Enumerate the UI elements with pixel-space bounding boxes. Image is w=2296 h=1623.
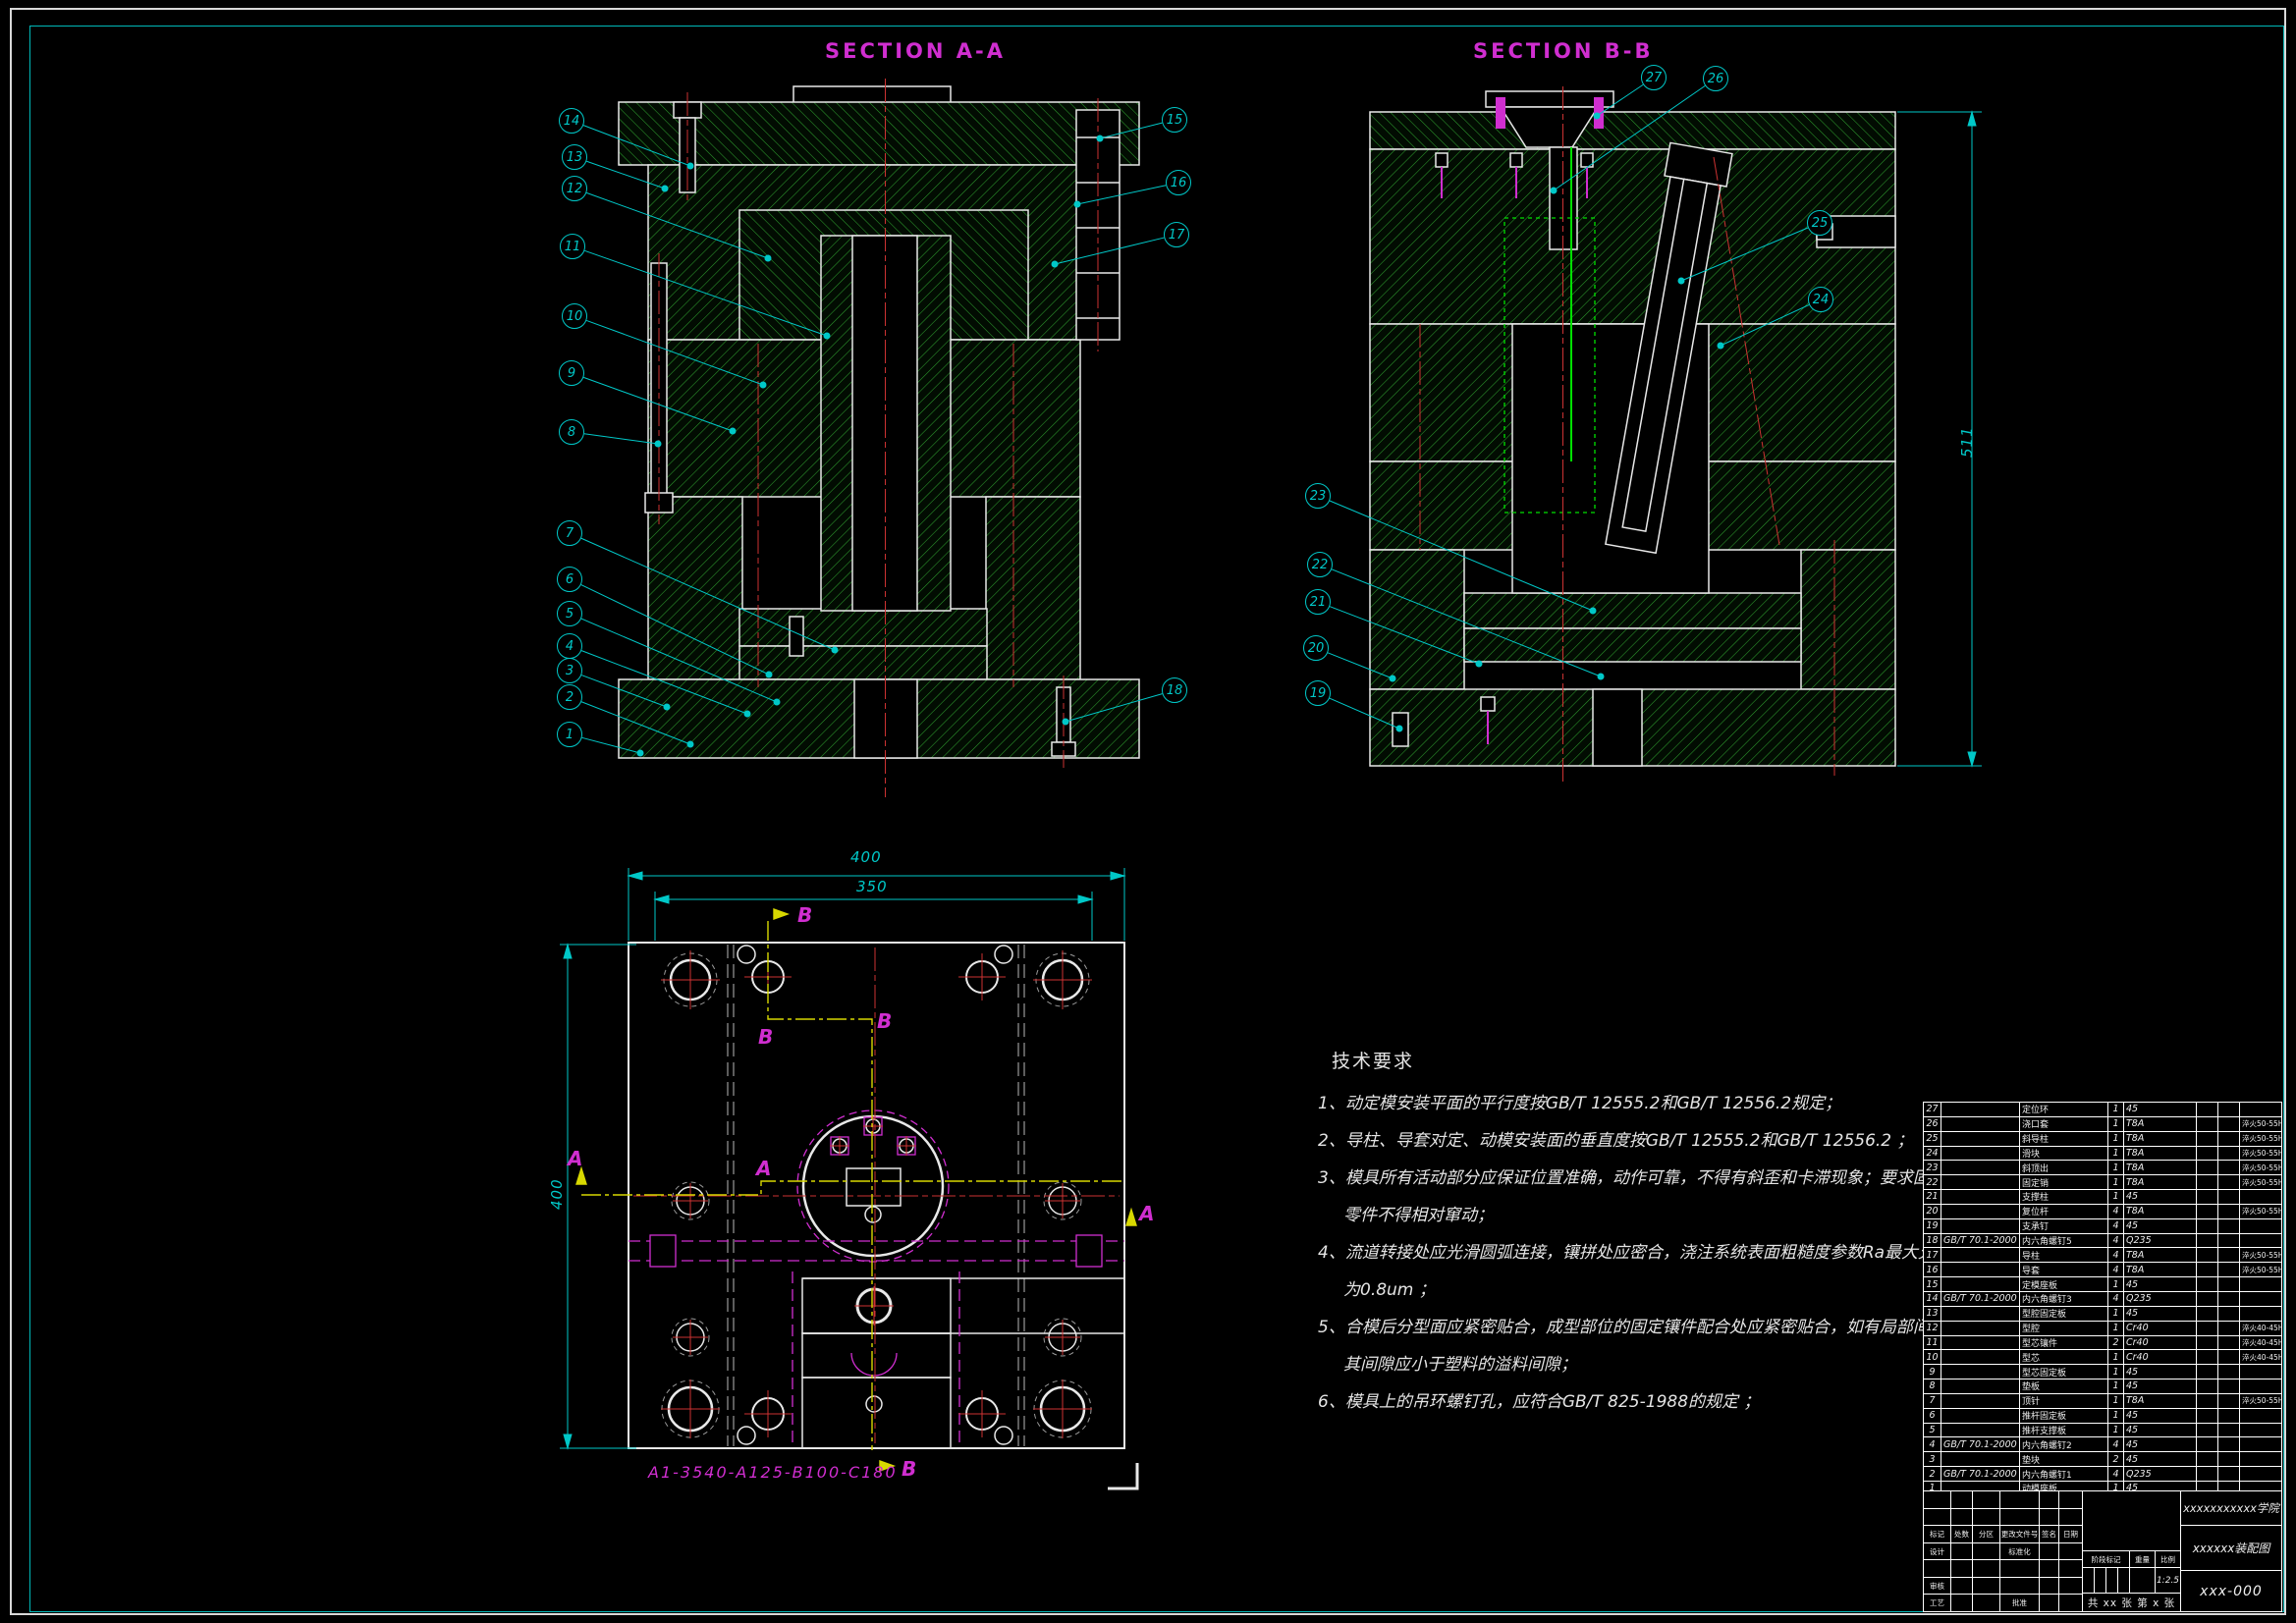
- balloon-9: 9: [559, 360, 584, 386]
- section-letter-A: A: [568, 1147, 582, 1170]
- tech-requirement-line: 其间隙应小于塑料的溢料间隙；: [1318, 1346, 1868, 1383]
- label-approve: 批准: [2000, 1595, 2040, 1611]
- balloon-22: 22: [1307, 552, 1333, 577]
- weight-value: [2130, 1568, 2156, 1593]
- balloon-20: 20: [1303, 635, 1329, 661]
- cad-drawing-canvas[interactable]: SECTION A-A SECTION B-B 400 350 400 511 …: [0, 0, 2296, 1623]
- balloon-6: 6: [557, 567, 582, 592]
- parts-list-row-18: 18GB/T 70.1-2000内六角螺钉54Q235: [1924, 1234, 2281, 1249]
- balloon-8: 8: [559, 419, 584, 445]
- parts-list-row-11: 11型芯镶件2Cr40淬火40-45HRC: [1924, 1336, 2281, 1351]
- balloon-3: 3: [557, 658, 582, 683]
- tech-requirement-line: 1、动定模安装平面的平行度按GB/T 12555.2和GB/T 12556.2规…: [1318, 1085, 1868, 1122]
- balloon-1: 1: [557, 722, 582, 747]
- parts-list-row-4: 4GB/T 70.1-2000内六角螺钉2445: [1924, 1437, 2281, 1452]
- tech-requirement-line: 2、导柱、导套对定、动模安装面的垂直度按GB/T 12555.2和GB/T 12…: [1318, 1122, 1868, 1160]
- title-block-middle: 阶段标记 重量 比例 1:2.5 共 xx 张 第 x 张: [2083, 1491, 2181, 1611]
- balloon-19: 19: [1305, 680, 1331, 706]
- label-zone: 分区: [1973, 1526, 2000, 1542]
- dim-inner-350: 350: [856, 878, 888, 895]
- section-letter-B: B: [902, 1457, 916, 1481]
- title-block-right: xxxxxxxxxxx学院 xxxxxx装配图 xxx-000: [2181, 1491, 2281, 1611]
- parts-list-row-24: 24滑块1T8A淬火50-55HRC: [1924, 1147, 2281, 1162]
- label-stage-mark: 阶段标记: [2083, 1551, 2130, 1567]
- parts-list-row-7: 7顶针1T8A淬火50-55HRC: [1924, 1394, 2281, 1409]
- section-letter-B: B: [797, 903, 812, 927]
- balloon-4: 4: [557, 633, 582, 659]
- organization-name: xxxxxxxxxxx学院: [2181, 1491, 2281, 1526]
- stage-mark-cells: [2083, 1568, 2130, 1593]
- parts-list-row-12: 12型腔1Cr40淬火40-45HRC: [1924, 1322, 2281, 1336]
- balloon-13: 13: [562, 144, 587, 170]
- parts-list-row-23: 23斜顶出1T8A淬火50-55HRC: [1924, 1161, 2281, 1175]
- tech-requirement-line: 3、模具所有活动部分应保证位置准确，动作可靠，不得有斜歪和卡滞现象；要求固定的: [1318, 1160, 1868, 1197]
- balloon-23: 23: [1305, 483, 1331, 509]
- parts-list-row-16: 16导套4T8A淬火50-55HRC: [1924, 1263, 2281, 1277]
- parts-list-row-6: 6推杆固定板145: [1924, 1409, 2281, 1424]
- parts-list-row-20: 20复位杆4T8A淬火50-55HRC: [1924, 1205, 2281, 1219]
- balloon-18: 18: [1162, 677, 1187, 703]
- drawing-title: xxxxxx装配图: [2181, 1526, 2281, 1571]
- label-sign: 签名: [2040, 1526, 2059, 1542]
- balloon-16: 16: [1166, 170, 1191, 195]
- drawing-number: xxx-000: [2181, 1571, 2281, 1611]
- sheet-count: 共 xx 张 第 x 张: [2083, 1594, 2180, 1611]
- dim-height-511: 511: [1958, 426, 1976, 458]
- tech-requirement-line: 6、模具上的吊环螺钉孔，应符合GB/T 825-1988的规定 ；: [1318, 1383, 1868, 1421]
- label-review: 审核: [1924, 1578, 1951, 1595]
- balloon-15: 15: [1162, 107, 1187, 133]
- parts-list-row-8: 8垫板145: [1924, 1380, 2281, 1394]
- balloon-10: 10: [562, 303, 587, 329]
- balloon-11: 11: [560, 234, 585, 259]
- tech-requirement-line: 4、流道转接处应光滑圆弧连接，镶拼处应密合，浇注系统表面粗糙度参数Ra最大允许值: [1318, 1234, 1868, 1271]
- label-mark: 标记: [1924, 1526, 1951, 1542]
- balloon-2: 2: [557, 684, 582, 710]
- parts-list-row-2: 2GB/T 70.1-2000内六角螺钉14Q235: [1924, 1467, 2281, 1482]
- balloon-5: 5: [557, 601, 582, 626]
- parts-list-row-22: 22固定销1T8A淬火50-55HRC: [1924, 1175, 2281, 1190]
- parts-list-table: 27定位环14526浇口套1T8A淬火50-55HRC25斜导柱1T8A淬火50…: [1923, 1102, 2282, 1519]
- parts-list-row-21: 21支撑柱145: [1924, 1190, 2281, 1205]
- parts-list-row-3: 3垫块245: [1924, 1452, 2281, 1467]
- label-design: 设计: [1924, 1543, 1951, 1560]
- tech-requirements-lines: 1、动定模安装平面的平行度按GB/T 12555.2和GB/T 12556.2规…: [1318, 1085, 1868, 1421]
- title-block: 标记 处数 分区 更改文件号 签名 日期 设计 标准化 审核 工艺 批: [1923, 1490, 2282, 1612]
- section-letter-A: A: [1139, 1202, 1154, 1225]
- mold-base-code: A1-3540-A125-B100-C180: [648, 1463, 898, 1482]
- scale-value: 1:2.5: [2156, 1568, 2180, 1593]
- parts-list-row-27: 27定位环145: [1924, 1103, 2281, 1117]
- parts-list-row-17: 17导柱4T8A淬火50-55HRC: [1924, 1248, 2281, 1263]
- parts-list-row-25: 25斜导柱1T8A淬火50-55HRC: [1924, 1132, 2281, 1147]
- parts-list-row-26: 26浇口套1T8A淬火50-55HRC: [1924, 1117, 2281, 1132]
- tech-requirement-line: 为0.8um ；: [1318, 1271, 1868, 1309]
- parts-list-row-10: 10型芯1Cr40淬火40-45HRC: [1924, 1350, 2281, 1365]
- section-letter-A: A: [756, 1157, 771, 1180]
- balloon-27: 27: [1641, 65, 1667, 90]
- tech-requirement-line: 零件不得相对窜动；: [1318, 1197, 1868, 1234]
- tech-requirement-line: 5、合模后分型面应紧密贴合，成型部位的固定镶件配合处应紧密贴合，如有局部间隙，: [1318, 1309, 1868, 1346]
- section-b-title: SECTION B-B: [1473, 39, 1654, 63]
- dim-top-400: 400: [850, 848, 882, 866]
- balloon-14: 14: [559, 108, 584, 134]
- section-letter-B: B: [877, 1009, 892, 1033]
- parts-list-row-9: 9型芯固定板145: [1924, 1365, 2281, 1380]
- label-scale: 比例: [2156, 1551, 2180, 1567]
- section-a-title: SECTION A-A: [825, 39, 1006, 63]
- section-letter-B: B: [758, 1025, 773, 1049]
- parts-list-row-13: 13型腔固定板145: [1924, 1307, 2281, 1322]
- balloon-17: 17: [1164, 222, 1189, 247]
- label-process: 工艺: [1924, 1595, 1951, 1611]
- balloon-21: 21: [1305, 589, 1331, 615]
- parts-list-row-15: 15定模座板145: [1924, 1277, 2281, 1292]
- balloon-26: 26: [1703, 66, 1728, 91]
- balloon-25: 25: [1807, 210, 1832, 236]
- parts-list-row-5: 5推杆支撑板145: [1924, 1424, 2281, 1438]
- label-count: 处数: [1951, 1526, 1973, 1542]
- dim-left-400: 400: [548, 1178, 566, 1210]
- parts-list-row-19: 19支承钉445: [1924, 1219, 2281, 1234]
- label-standard: 标准化: [2000, 1543, 2040, 1560]
- balloon-24: 24: [1808, 287, 1833, 312]
- technical-requirements: 技术要求 1、动定模安装平面的平行度按GB/T 12555.2和GB/T 125…: [1318, 1047, 1868, 1421]
- balloon-12: 12: [562, 176, 587, 201]
- title-block-revision-grid: 标记 处数 分区 更改文件号 签名 日期 设计 标准化 审核 工艺 批: [1924, 1491, 2083, 1611]
- label-change-doc: 更改文件号: [2000, 1526, 2040, 1542]
- parts-list-rows: 27定位环14526浇口套1T8A淬火50-55HRC25斜导柱1T8A淬火50…: [1924, 1103, 2281, 1495]
- parts-list-row-14: 14GB/T 70.1-2000内六角螺钉34Q235: [1924, 1292, 2281, 1307]
- label-date: 日期: [2059, 1526, 2082, 1542]
- label-weight: 重量: [2130, 1551, 2156, 1567]
- tech-requirements-title: 技术要求: [1332, 1047, 1868, 1073]
- balloon-7: 7: [557, 520, 582, 546]
